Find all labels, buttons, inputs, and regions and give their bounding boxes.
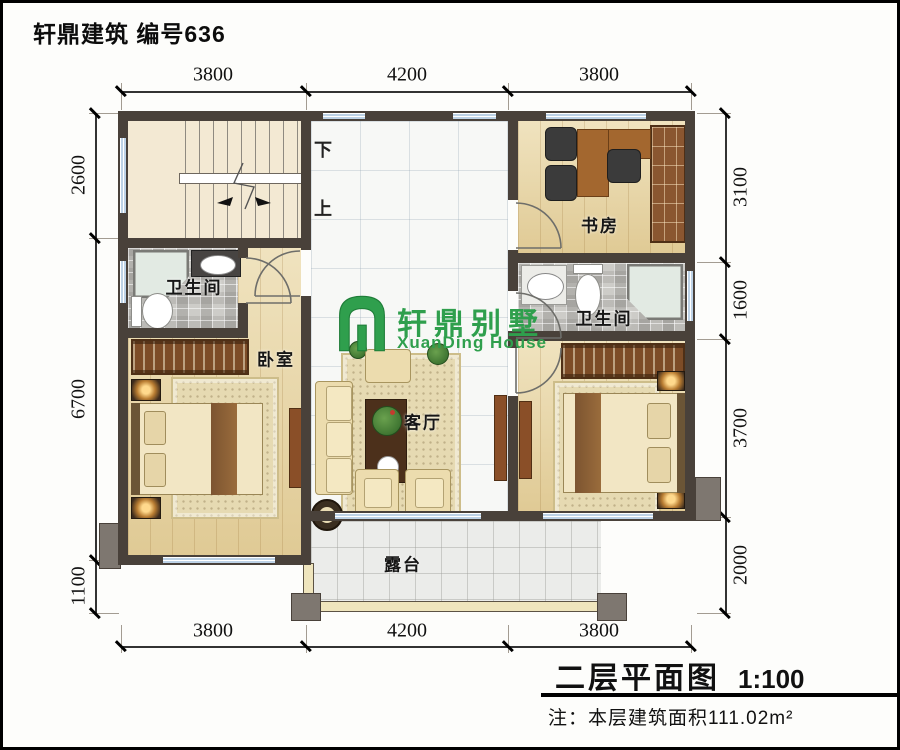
wall-terrace-b <box>481 511 543 521</box>
wall-terrace-a <box>301 511 335 521</box>
tv-cabinet <box>494 395 507 481</box>
logo-text-en: XuanDing House <box>397 333 547 353</box>
sofa-cushion <box>326 422 352 457</box>
wall-stair-bathroom <box>118 238 311 248</box>
dim-top-2: 4200 <box>387 64 427 87</box>
window-hall-top-2 <box>453 111 496 121</box>
sofa-cushion <box>326 386 352 421</box>
room-label-terrace: 露台 <box>384 551 422 576</box>
window-stair-left <box>118 138 128 213</box>
window-study-top <box>546 111 646 121</box>
dim-left-3: 1100 <box>68 566 91 605</box>
toilet-tank <box>131 296 142 327</box>
tv-cabinet <box>519 401 532 479</box>
nightstand <box>131 379 161 401</box>
dim-right-2: 1600 <box>730 280 753 320</box>
room-label-living: 客厅 <box>404 409 442 434</box>
table-plant <box>372 406 402 436</box>
wall-center-left-a <box>301 121 311 250</box>
wall-center-right-d <box>508 396 518 521</box>
dim-line-bottom <box>121 646 691 648</box>
title-underline <box>541 693 899 697</box>
bed-headboard <box>677 393 685 493</box>
wall-terrace-c <box>653 511 695 521</box>
nightstand <box>131 497 161 519</box>
dim-bottom-3: 3800 <box>579 620 619 643</box>
floor-plan-page: 轩鼎建筑 编号636 <box>0 0 900 750</box>
wall-center-left-b <box>301 296 311 565</box>
dim-ext <box>508 83 509 110</box>
pillow <box>144 411 166 445</box>
flower-dot <box>390 410 395 415</box>
window-bathroom-left <box>118 261 128 303</box>
bookshelf <box>650 125 686 243</box>
wall-bathroom-left-side-a <box>238 248 248 258</box>
window-bathroom-right <box>685 271 695 321</box>
sofa <box>315 381 353 495</box>
bed-headboard <box>131 403 140 495</box>
stair-down-label: 下 <box>314 136 332 162</box>
bed-blanket <box>211 403 237 495</box>
page-title: 轩鼎建筑 编号636 <box>33 15 226 49</box>
dim-left-2: 6700 <box>68 379 91 419</box>
wall-study-bottom <box>508 253 695 263</box>
toilet-tank <box>573 264 603 274</box>
sink-basin <box>200 255 236 275</box>
dim-ext <box>306 83 307 110</box>
guest-chair <box>545 127 577 161</box>
dim-top-1: 3800 <box>193 64 233 87</box>
terrace-rail-bottom <box>319 601 599 612</box>
exterior-pier-right <box>695 477 721 521</box>
plan-scale: 1:100 <box>738 664 805 695</box>
dim-ext <box>691 83 692 110</box>
dim-right-1: 3100 <box>730 167 753 207</box>
plan-name: 二层平面图 <box>555 653 720 697</box>
dim-top-3: 3800 <box>579 64 619 87</box>
dim-left-1: 2600 <box>68 155 91 195</box>
wall-bathroom-left-side-b <box>238 303 248 338</box>
dim-right-3: 3700 <box>730 408 753 448</box>
window-hall-top-1 <box>323 111 365 121</box>
room-label-study: 书房 <box>581 212 619 237</box>
dim-line-top <box>121 91 691 93</box>
guest-chair <box>545 165 577 201</box>
room-label-bath-left: 卫生间 <box>166 274 223 299</box>
pillow <box>647 403 671 439</box>
dim-line-left <box>95 113 97 613</box>
dim-line-right <box>725 113 727 613</box>
single-chair <box>365 349 411 383</box>
nightstand <box>657 371 685 391</box>
wall-center-right-a <box>508 121 518 200</box>
armchair-cushion <box>415 478 444 508</box>
area-note: 注：本层建筑面积111.02m² <box>548 703 793 730</box>
dim-ext <box>121 83 122 110</box>
stair-handrail <box>179 173 307 184</box>
dim-right-4: 2000 <box>730 545 753 585</box>
wall-bedroom-left-bottom-a <box>118 555 163 565</box>
armchair <box>405 469 451 515</box>
window-terrace-door <box>335 511 481 521</box>
dim-bottom-1: 3800 <box>193 620 233 643</box>
terrace-floor <box>311 521 601 601</box>
pillow <box>647 447 671 483</box>
terrace-pier-left <box>291 593 321 621</box>
window-bedroom-left-bottom <box>163 555 275 565</box>
room-label-bath-right: 卫生间 <box>576 305 633 330</box>
desk-return <box>577 129 609 197</box>
bed-blanket <box>575 393 601 493</box>
wall-bathroom-left-bottom <box>118 328 248 338</box>
pillow <box>144 453 166 487</box>
wardrobe <box>131 339 249 375</box>
terrace-pier-right <box>597 593 627 621</box>
dim-bottom-2: 4200 <box>387 620 427 643</box>
room-label-bedroom: 卧室 <box>257 346 295 371</box>
sofa-cushion <box>326 458 352 493</box>
stair-up-label: 上 <box>314 195 332 221</box>
office-chair <box>607 149 641 183</box>
wall-bedroom-left-bottom-b <box>275 555 311 565</box>
armchair <box>355 469 399 515</box>
window-bedroom-right-bottom <box>543 511 653 521</box>
armchair-cushion <box>364 478 392 508</box>
title-block: 二层平面图 1:100 <box>555 653 805 697</box>
sink-basin <box>527 273 564 300</box>
